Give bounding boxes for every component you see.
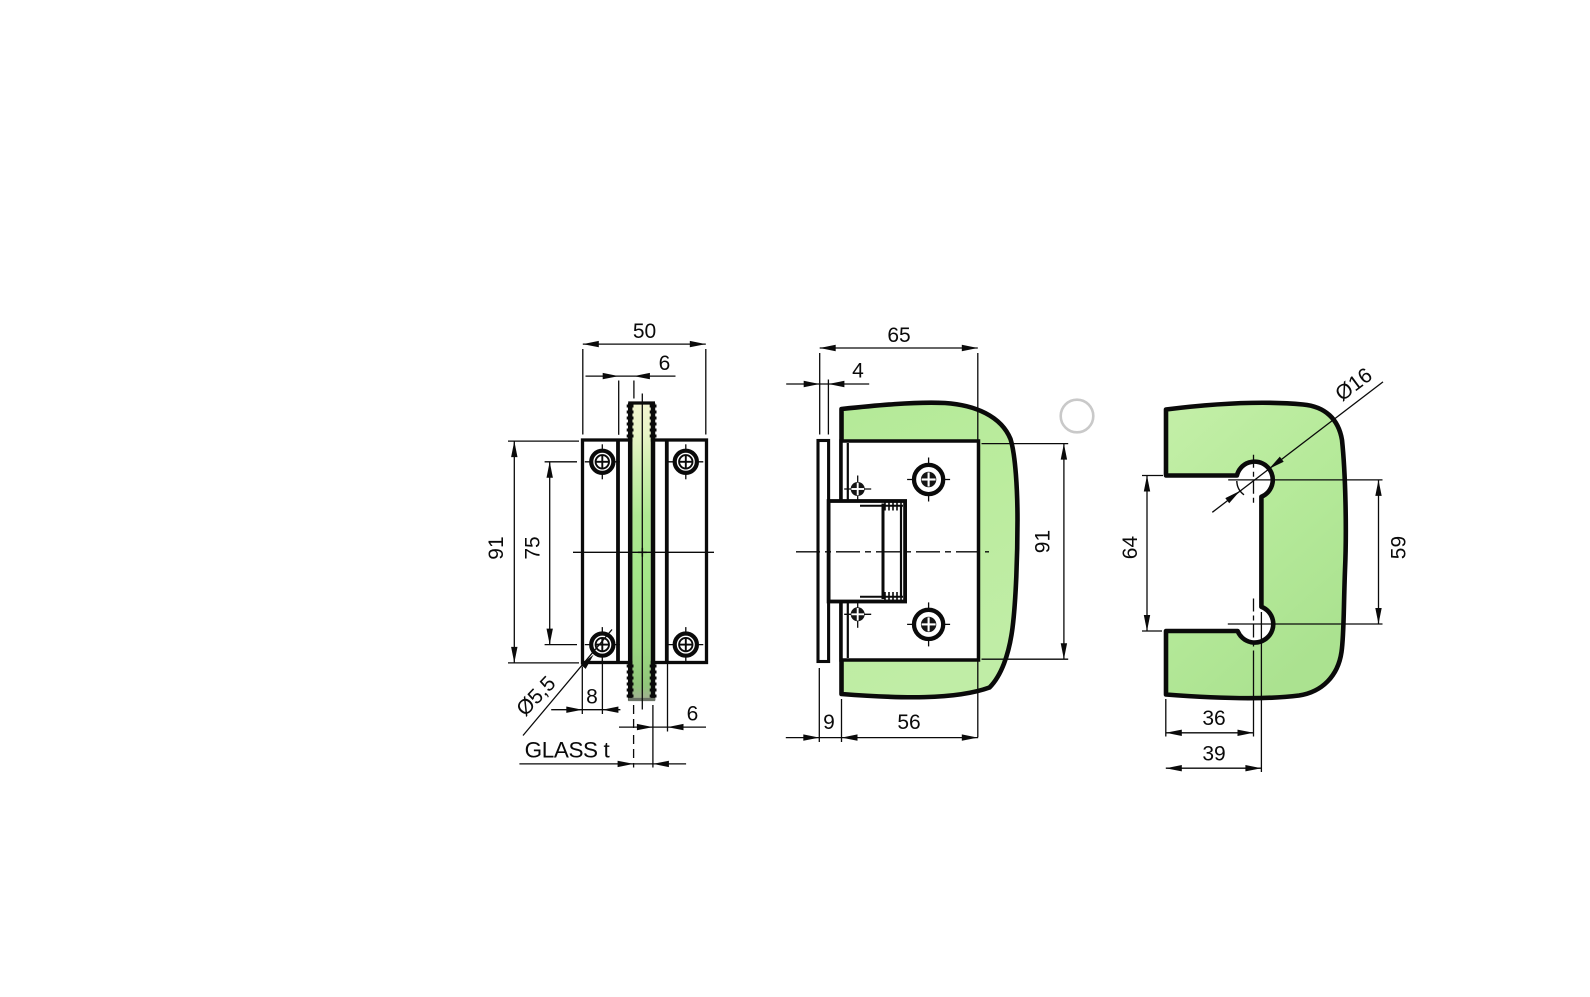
svg-text:6: 6 (659, 352, 671, 375)
svg-text:36: 36 (1202, 707, 1225, 730)
svg-text:39: 39 (1202, 743, 1225, 766)
svg-text:91: 91 (1032, 530, 1055, 553)
svg-text:64: 64 (1119, 536, 1142, 560)
svg-text:9: 9 (823, 711, 835, 734)
svg-text:4: 4 (852, 360, 864, 383)
svg-text:56: 56 (897, 711, 920, 734)
svg-text:8: 8 (586, 686, 598, 709)
svg-text:59: 59 (1388, 536, 1411, 559)
svg-text:50: 50 (633, 320, 656, 343)
svg-text:91: 91 (485, 536, 508, 559)
svg-text:GLASS t: GLASS t (525, 737, 611, 762)
svg-text:6: 6 (687, 703, 699, 726)
svg-text:Ø16: Ø16 (1331, 364, 1377, 406)
svg-text:65: 65 (887, 324, 910, 347)
svg-text:75: 75 (522, 536, 545, 559)
svg-text:Ø5,5: Ø5,5 (512, 672, 560, 721)
